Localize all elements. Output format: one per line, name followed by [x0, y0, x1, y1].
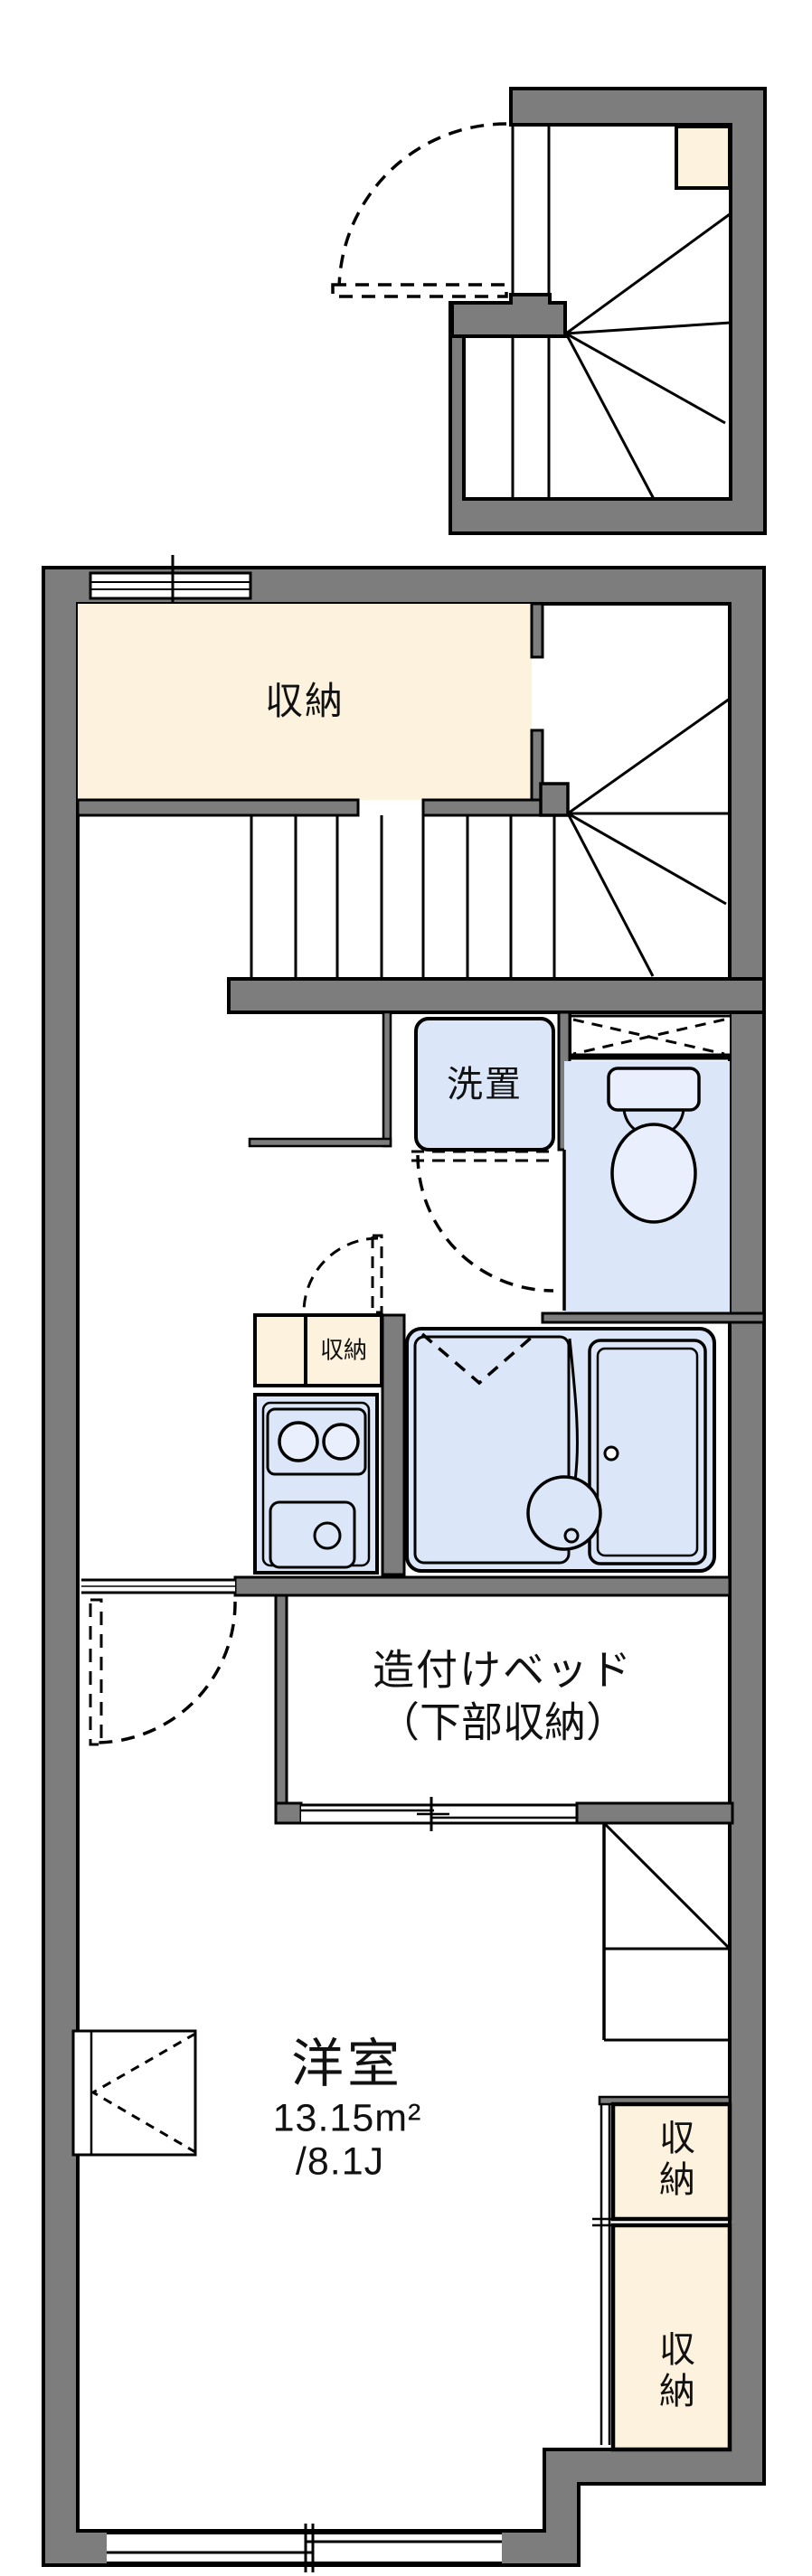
- toilet-bottom-wall: [543, 1313, 764, 1322]
- storage-upper-label: 収納: [265, 681, 345, 722]
- stair-winders: [568, 699, 730, 976]
- stair-treads: [251, 815, 554, 979]
- room-door-icon: [90, 1600, 235, 1744]
- sink-icon: [270, 1502, 354, 1567]
- closet-upper-label: 収納: [654, 2119, 694, 2202]
- bed-bottom-wall-right: [577, 1803, 732, 1823]
- bed-bottom-stub: [276, 1803, 301, 1823]
- stair-bottom-wall: [229, 979, 764, 1012]
- entrance-door-leaf: [333, 285, 506, 296]
- built-in-bed-label-line2: （下部収納）: [378, 1700, 628, 1746]
- closet-lower-label: 収納: [654, 2330, 694, 2413]
- entrance-stair-block: [333, 89, 765, 533]
- room-name-label: 洋室: [291, 2035, 403, 2093]
- washroom-door-icon: [411, 1152, 553, 1291]
- kitchen-bath-wall: [382, 1315, 404, 1575]
- kitchen-door-icon: [304, 1236, 382, 1312]
- bathroom: [407, 1329, 714, 1571]
- kitchen-counter: [255, 1395, 377, 1573]
- upper-cabinet: [568, 1014, 730, 1059]
- storage-stair-divider-wall: [532, 604, 543, 800]
- desk-icon: [73, 2031, 195, 2155]
- entrance-mat: [676, 127, 730, 188]
- upper-stair-winders: [566, 214, 731, 499]
- floor-plan: 収納 洗置 収納 造付けベッド （下部収納） 洋室 13.15m² /8.1J …: [0, 0, 812, 2576]
- bed-top-wall: [235, 1577, 730, 1595]
- toilet-icon: [609, 1068, 699, 1222]
- room-area-label: 13.15m²: [273, 2097, 422, 2139]
- stair-landing-upper: [452, 295, 565, 336]
- storage-bottom-wall: [78, 800, 568, 815]
- bottom-window: [107, 2524, 502, 2572]
- corridor-partition-wall: [250, 1012, 391, 1146]
- built-in-bed-label-line1: 造付けベッド: [373, 1648, 633, 1694]
- kitchen: [255, 1236, 404, 1575]
- stove-icon: [268, 1409, 365, 1474]
- entrance-door-icon: [333, 124, 506, 296]
- kitchen-storage-label: 収納: [320, 1338, 367, 1364]
- entrance-door-arc: [339, 124, 506, 291]
- bed-left-wall: [276, 1595, 287, 1823]
- stair-landing-main: [541, 784, 568, 815]
- bed-slider-window: [301, 1797, 577, 1831]
- washer-space-label: 洗置: [447, 1065, 523, 1105]
- room-tatami-label: /8.1J: [296, 2140, 384, 2183]
- washbasin-icon: [528, 1477, 600, 1549]
- washroom: [250, 1012, 570, 1291]
- closet-column: [604, 1823, 730, 2040]
- room-entry-threshold: [81, 1580, 235, 1593]
